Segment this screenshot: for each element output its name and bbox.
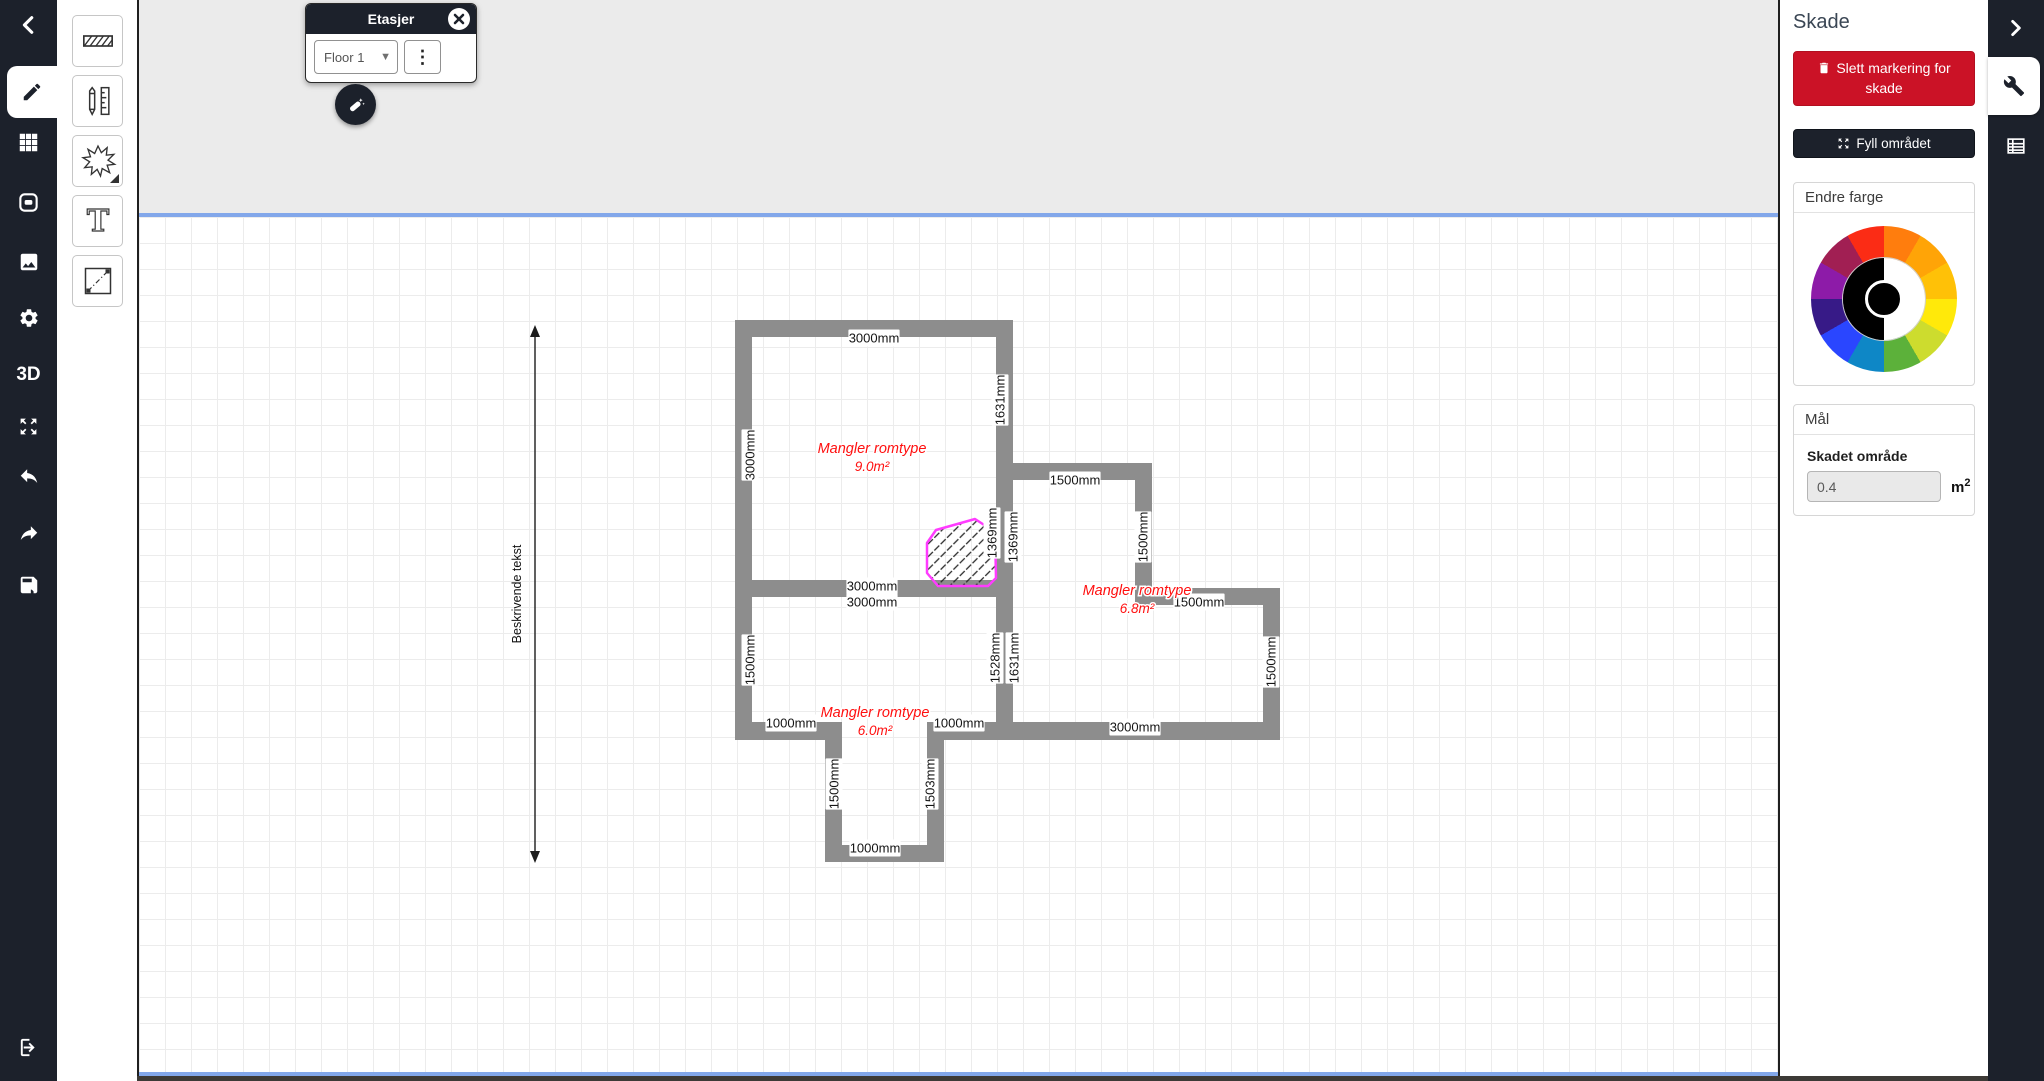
panel-title: Skade [1793,11,1975,34]
image-button[interactable] [0,240,57,284]
save-icon [18,574,40,596]
floor-boundary-top [139,213,1778,217]
canvas-grid [139,217,1778,1072]
chevron-left-icon [18,14,40,36]
page-bottom-edge [137,1076,1988,1081]
tool-diagonal-measure-button[interactable] [72,255,123,307]
floors-panel-close-button[interactable] [448,8,470,30]
floor-options-button[interactable]: ⋮ [404,40,441,74]
save-button[interactable] [0,563,57,607]
floors-panel-body: Floor 1 ▼ ⋮ [306,34,476,82]
delete-damage-button[interactable]: Slett markering for skade [1793,51,1975,106]
undo-button[interactable] [0,456,57,500]
redo-icon [18,524,40,546]
logout-button[interactable] [0,1025,57,1069]
left-sidebar: 3D [0,0,57,1081]
back-button[interactable] [0,3,57,47]
close-icon [453,13,465,25]
floorplan-editor-app: 3D [0,0,2044,1081]
tab-report[interactable] [1988,126,2044,166]
3d-label: 3D [16,364,40,386]
delete-damage-label: Slett markering for skade [1836,60,1950,96]
flyout-indicator [110,174,119,183]
svg-text:T: T [86,204,109,239]
undo-icon [18,467,40,489]
fullscreen-button[interactable] [0,404,57,448]
tab-tools-active[interactable] [1988,57,2040,115]
logout-icon [17,1036,40,1059]
grid-icon [18,132,39,153]
text-tool-icon: T [78,201,118,241]
tool-pencil-ruler-button[interactable] [72,75,123,127]
measure-card-title: Mål [1794,405,1974,435]
device-button[interactable] [0,180,57,224]
floors-panel-title: Etasjer [368,11,415,27]
floors-panel: Etasjer Floor 1 ▼ ⋮ [305,3,477,83]
pencil-icon [21,81,43,103]
color-card-title: Endre farge [1794,183,1974,213]
color-wheel-center [1865,280,1903,318]
grid-button[interactable] [0,120,57,164]
damaged-area-label: Skadet område [1807,448,1961,464]
magic-wand-icon [345,94,367,116]
collapse-panel-button[interactable] [1988,8,2044,48]
measure-card: Mål Skadet område m2 [1793,404,1975,516]
settings-button[interactable] [0,296,57,340]
gear-icon [18,307,40,329]
damaged-area-input[interactable] [1807,471,1941,502]
drawing-canvas[interactable]: 3000mm3000mm3000mm1500mm1500mm3000mm1000… [137,0,1780,1081]
kebab-icon: ⋮ [414,47,432,68]
fill-area-label: Fyll området [1856,136,1930,151]
chevron-right-icon [2006,18,2026,38]
3d-view-button[interactable]: 3D [0,353,57,397]
chevron-down-icon: ▼ [380,51,391,63]
diagonal-measure-icon [78,261,118,301]
draw-tool-button-active[interactable] [7,66,57,118]
color-wheel[interactable] [1811,226,1957,372]
magic-wand-button[interactable] [335,84,376,125]
image-icon [18,251,40,273]
floor-select[interactable]: Floor 1 ▼ [314,40,398,74]
tool-strip: T [57,0,137,1081]
right-sidebar [1988,0,2044,1081]
damage-panel: Skade Slett markering for skade Fyll omr… [1780,0,1988,1081]
list-icon [2005,135,2027,157]
color-card: Endre farge [1793,182,1975,386]
pencil-ruler-icon [78,81,118,121]
area-unit: m2 [1951,477,1970,496]
device-icon [17,191,40,214]
redo-button[interactable] [0,513,57,557]
tool-wall-hatch-button[interactable] [72,15,123,67]
tool-starburst-button[interactable] [72,135,123,187]
floors-panel-header: Etasjer [306,4,476,34]
fill-area-button[interactable]: Fyll området [1793,129,1975,158]
wall-hatch-icon [78,21,118,61]
floor-select-value: Floor 1 [324,50,364,65]
fill-expand-icon [1837,137,1850,150]
wrench-icon [2003,75,2025,97]
expand-icon [18,416,39,437]
tool-text-button[interactable]: T [72,195,123,247]
trash-icon [1817,61,1831,75]
